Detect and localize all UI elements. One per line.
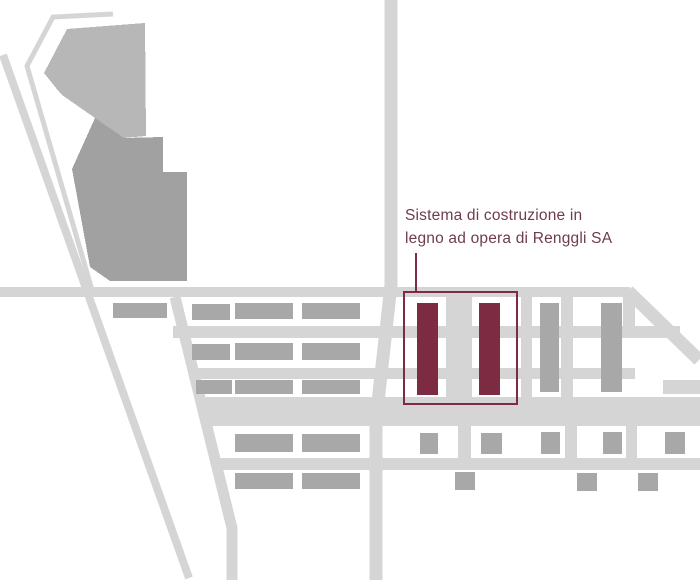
building [541, 432, 560, 454]
building [302, 473, 360, 489]
building [235, 303, 293, 319]
building [192, 304, 230, 320]
road-bar-right-edge [663, 380, 700, 394]
annotation-line-1: Sistema di costruzione in [405, 204, 665, 227]
large-building-lower [72, 118, 187, 281]
road-vertical-521 [521, 297, 532, 397]
road-diagonal-mid [175, 297, 232, 580]
road-stub-3 [626, 426, 637, 458]
building-tall [601, 303, 622, 392]
road-top-horizontal [0, 287, 630, 297]
renggli-building-2 [479, 303, 500, 395]
road-main-wide [200, 397, 700, 426]
site-map [0, 0, 700, 584]
building [577, 473, 597, 491]
building [302, 380, 360, 394]
renggli-building-1 [417, 303, 438, 395]
road-stub-2 [565, 426, 577, 458]
building [235, 473, 293, 489]
building [665, 432, 685, 454]
building [235, 343, 293, 360]
building [302, 343, 360, 360]
building-tall [540, 303, 559, 392]
building [420, 433, 438, 454]
building [302, 434, 360, 452]
building [455, 472, 475, 490]
building [603, 432, 622, 454]
building [113, 303, 167, 318]
road-stub-1 [458, 426, 471, 458]
building [235, 434, 293, 452]
building [192, 344, 230, 360]
annotation-label: Sistema di costruzione in legno ad opera… [405, 204, 665, 250]
road-row-5 [213, 458, 700, 470]
building [302, 303, 360, 319]
road-vertical-623 [623, 297, 635, 338]
road-diagonal-topright [628, 291, 699, 360]
building [481, 433, 502, 454]
site-plan: Sistema di costruzione in legno ad opera… [0, 0, 700, 584]
annotation-line-2: legno ad opera di Renggli SA [405, 227, 665, 250]
building [196, 380, 232, 394]
road-vertical-in-block [446, 294, 472, 397]
building [638, 473, 658, 491]
road-vertical-561 [561, 297, 573, 397]
building [235, 380, 293, 394]
